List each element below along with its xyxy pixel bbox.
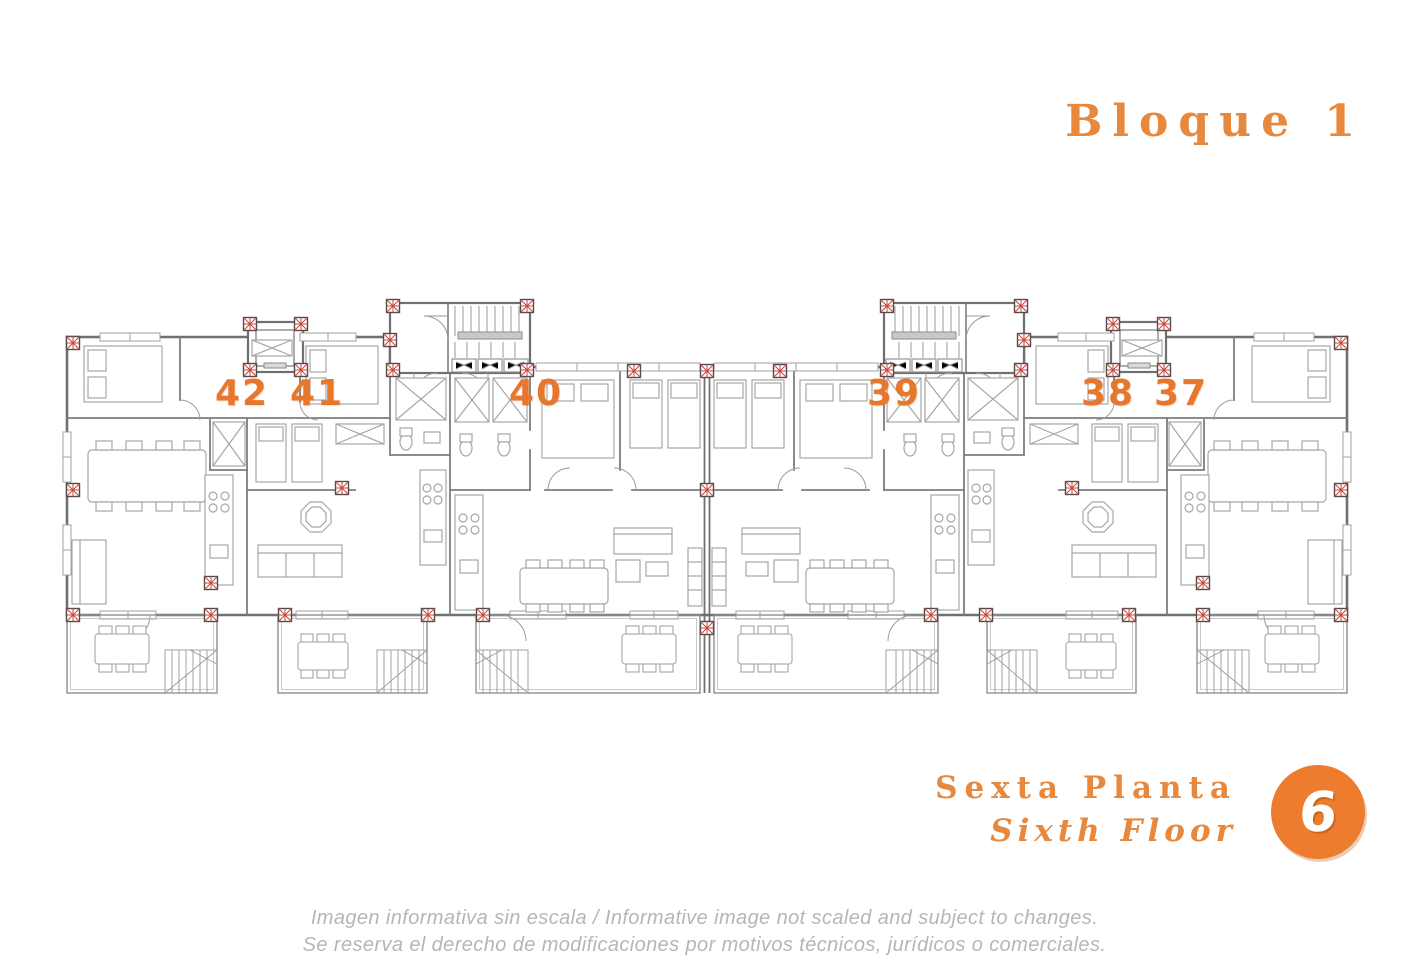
floor-label-spanish: Sexta Planta [935,770,1237,806]
disclaimer-line-2: Se reserva el derecho de modificaciones … [0,932,1409,959]
unit-number-37: 37 [1154,373,1208,414]
disclaimer-line-1: Imagen informativa sin escala / Informat… [0,905,1409,932]
page-title: Bloque 1 [1065,96,1365,147]
unit-number-39: 39 [867,373,921,414]
unit-number-38: 38 [1081,373,1135,414]
disclaimer: Imagen informativa sin escala / Informat… [0,905,1409,959]
floor-number-badge: 6 [1271,765,1365,859]
floor-plan-page: Bloque 1 42 41 40 39 38 37 Sexta Planta … [0,0,1409,975]
central-party-wall [701,365,714,694]
floor-number: 6 [1296,780,1340,844]
floor-label-english: Sixth Floor [935,813,1237,849]
floor-label: Sexta Planta Sixth Floor [935,770,1237,849]
unit-number-42: 42 [215,373,269,414]
unit-number-41: 41 [290,373,344,414]
unit-number-40: 40 [509,373,563,414]
